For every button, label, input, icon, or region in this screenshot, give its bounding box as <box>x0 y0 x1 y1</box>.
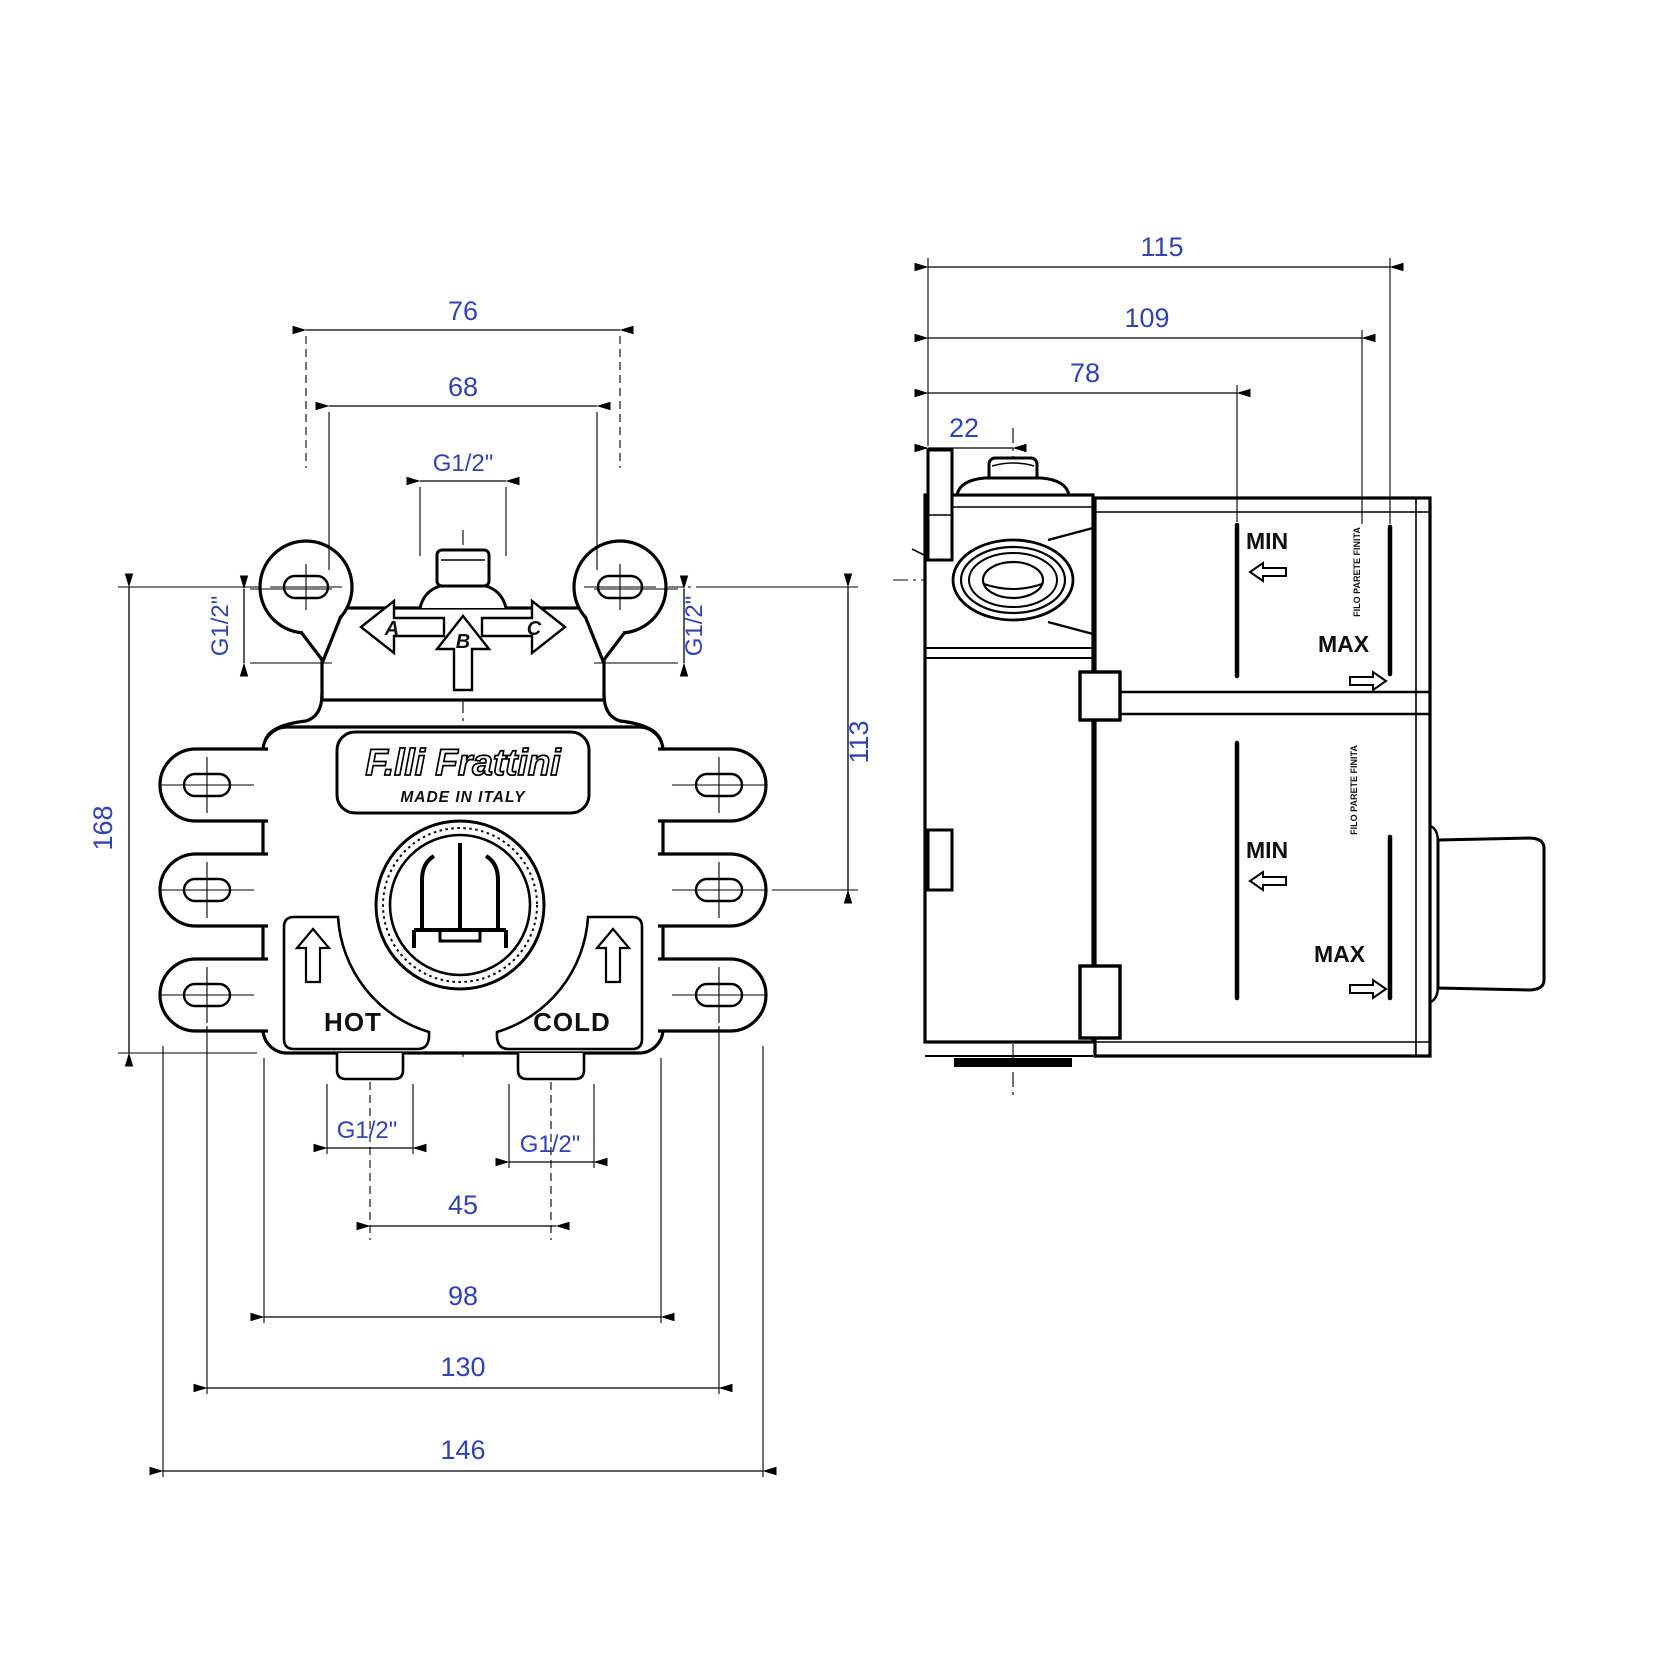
wall-note-lower: FILO PARETE FINITA <box>1349 745 1359 835</box>
mounting-ear <box>658 854 766 926</box>
dim-height: 168 <box>88 805 118 850</box>
technical-drawing-sheet: B A C <box>0 0 1660 1660</box>
dim-depth-to-max: 109 <box>1124 303 1169 333</box>
brand-name: F.lli Frattini <box>365 742 561 783</box>
dim-slot-spacing: 130 <box>440 1352 485 1382</box>
hot-label: HOT <box>324 1007 382 1037</box>
left-mounting-ears <box>160 749 268 1031</box>
front-view: B A C <box>88 296 874 1477</box>
dim-hot-port: G1/2" <box>337 1117 398 1144</box>
dim-top-width: 76 <box>448 296 478 326</box>
outlet-b-label: B <box>456 631 470 653</box>
top-port-cap <box>437 550 489 586</box>
dim-right-height: 113 <box>844 720 874 763</box>
dim-depth-to-min: 78 <box>1070 358 1100 388</box>
dim-inner-width: 68 <box>448 372 478 402</box>
max-label-upper: MAX <box>1318 631 1370 657</box>
dim-stem-offset: 22 <box>949 413 979 443</box>
brand-plate: F.lli Frattini MADE IN ITALY <box>337 732 589 813</box>
wall-bracket-tab <box>928 450 952 560</box>
stem-dome-flange <box>957 478 1069 495</box>
max-label-lower: MAX <box>1314 941 1366 967</box>
outlet-a-label: A <box>384 618 399 640</box>
top-port-flange <box>420 586 506 608</box>
valve-rough-in-drawing: B A C <box>0 0 1660 1660</box>
cold-label: COLD <box>533 1007 611 1037</box>
cover-clip-top <box>1080 672 1120 720</box>
dim-cold-port: G1/2" <box>520 1131 581 1158</box>
dim-side-port-left: G1/2" <box>207 596 234 657</box>
min-label-upper: MIN <box>1246 528 1288 554</box>
dim-body-width: 98 <box>448 1281 478 1311</box>
mounting-ear <box>160 749 268 821</box>
cold-port-stub <box>518 1053 584 1079</box>
outlet-c-label: C <box>527 618 542 640</box>
dim-top-port: G1/2" <box>433 450 494 477</box>
cover-clip-bottom <box>1080 966 1120 1038</box>
left-fixing-clip <box>928 830 952 890</box>
mounting-ear <box>658 749 766 821</box>
wall-note-upper: FILO PARETE FINITA <box>1352 527 1362 617</box>
dim-overall-width: 146 <box>440 1435 485 1465</box>
brand-emblem <box>376 821 544 989</box>
mounting-ear <box>658 959 766 1031</box>
dim-side-port-right: G1/2" <box>681 596 708 657</box>
mounting-ear <box>160 854 268 926</box>
body-foot-pad <box>954 1058 1072 1067</box>
dim-port-spacing: 45 <box>448 1190 478 1220</box>
made-in-italy-label: MADE IN ITALY <box>400 789 526 806</box>
right-mounting-ears <box>658 749 766 1031</box>
mounting-ear <box>160 959 268 1031</box>
hot-port-stub <box>337 1053 403 1079</box>
min-label-lower: MIN <box>1246 837 1288 863</box>
side-view: MIN FILO PARETE FINITA MAX FILO PARETE F… <box>893 232 1544 1100</box>
outlet-protrusion <box>1438 838 1544 990</box>
dim-overall-depth: 115 <box>1140 232 1183 262</box>
